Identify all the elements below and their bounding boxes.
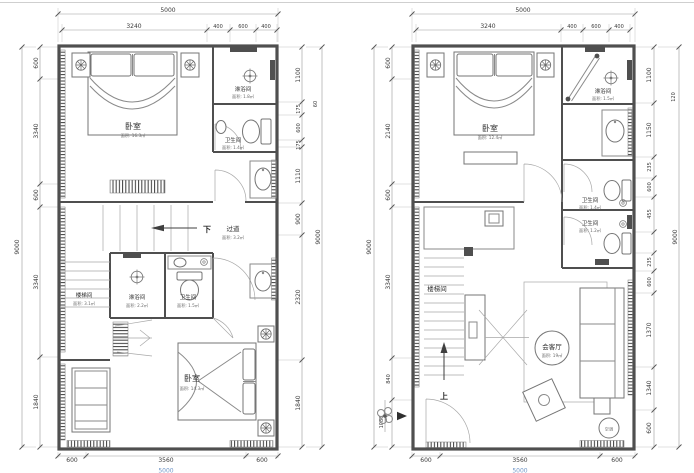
toilet-mid [168,256,211,300]
room-area-toilet-upper: 面积: 1.4㎡ [579,204,602,211]
dim-left-seg: 2140 [385,123,392,138]
dim-top-seg: 400 [614,24,624,30]
dim-left-seg: 1840 [33,394,40,409]
dim-right-seg: 1150 [646,122,653,137]
dim-left-total: 9000 [366,239,373,254]
dim-top-seg: 600 [591,24,601,30]
dim-left-seg: 3340 [385,274,392,289]
dim-bottom-seg: 600 [66,457,78,464]
dim-right-seg: 900 [295,213,302,225]
landing-table [485,211,503,226]
dim-right-seg: 1100 [646,67,653,82]
room-area-toilet-mid: 面积: 1.5㎡ [177,302,200,309]
dim-right-seg: 175 [296,140,302,150]
room-area-toilet-lower: 面积: 1.2㎡ [579,227,602,234]
window-band [628,280,633,395]
room-area-living: 面积: 19㎡ [542,352,563,359]
room-label-shower-mid: 淋浴间 [129,293,146,301]
dim-right-seg: 1840 [295,395,302,410]
dim-top-seg: 400 [261,24,271,30]
dim-right-total: 9000 [672,229,679,244]
dim-right-seg: 600 [647,277,653,287]
room-area-bedroom: 面积: 12.4㎡ [478,134,503,141]
room-area-bedroom-bottom: 面积: 14.3㎡ [180,385,205,392]
dim-right-seg: 235 [647,162,653,172]
dim-top-seg: 3240 [480,23,495,30]
window-band [580,441,624,448]
towel-bar [270,60,275,80]
wash-basin [602,110,632,156]
toilet-lower [604,233,631,254]
window-band [61,364,66,440]
entrance-threshold [426,442,466,448]
dim-bottom-seg: 600 [256,457,268,464]
dim-right-seg: 1340 [646,380,653,395]
dim-top-seg: 3240 [126,23,141,30]
room-label-toilet-upper: 卫生间 [582,196,599,204]
room-label-bedroom: 卧室 [482,123,498,133]
dim-right-seg: 1370 [646,322,653,337]
toilet-upper [604,180,631,201]
window-band [67,441,110,448]
sofa [580,288,624,398]
winder-railing [113,322,128,356]
dim-right-fragment: 60 [313,101,319,107]
window-band [272,160,277,198]
side-table [594,398,610,414]
dim-top-seg: 400 [213,24,223,30]
stair-down-label: 下 [203,225,211,234]
room-area-shower-top: 面积: 1.8㎡ [232,93,255,100]
room-label-bedroom-bottom: 卧室 [184,373,200,383]
dim-right-seg: 1110 [295,168,302,183]
dim-bottom-seg: 3560 [512,457,527,464]
dim-left-seg: 600 [385,57,392,69]
dim-right-fragment: 120 [671,92,677,102]
dim-right-seg: 235 [647,257,653,267]
bath-cabinet [595,259,609,265]
toilet-top [243,119,272,144]
room-label-shower: 淋浴间 [595,87,612,95]
shower-door-bar [123,254,141,258]
dim-left-total: 9000 [14,239,21,254]
room-area-corridor: 面积: 3.2㎡ [222,234,245,241]
dim-bottom-seg: 600 [420,457,432,464]
ac-label: 空调 [605,426,613,433]
dim-left-seg: 3340 [33,123,40,138]
entry-arrow [397,412,407,420]
stair-railing-grille [110,180,165,193]
room-label-toilet-top: 卫生间 [225,136,242,144]
dim-top-seg: 400 [567,24,577,30]
dim-right-seg: 600 [647,182,653,192]
down-arrow-head [151,225,164,231]
dim-right-seg: 600 [296,123,302,133]
room-label-stairwell: 楼梯间 [427,284,447,293]
floorplan-left: 5000 3240 400 600 400 9000 600 3340 600 … [0,0,347,473]
towel-bar [627,215,632,229]
window-band [61,207,66,352]
room-label-corridor: 过道 [227,224,241,233]
room-area-toilet-top: 面积: 1.4㎡ [222,144,245,151]
wardrobe [72,368,110,432]
window-band [415,207,420,387]
dim-right-total: 9000 [315,229,322,244]
dim-bottom-seg: 3560 [158,457,173,464]
dim-right-seg: 1100 [295,67,302,82]
room-label-bedroom-top: 卧室 [125,121,141,131]
window-band [61,50,66,198]
armchair [523,379,566,422]
window-sill [230,47,257,52]
stair-up-label: 上 [440,391,448,401]
dim-right-seg: 455 [647,209,653,219]
dim-left-seg: 840 [386,374,392,384]
room-area-shower-mid: 面积: 2.2㎡ [126,302,149,309]
floorplan-right: 5000 3240 400 600 400 9000 600 2140 600 … [347,0,694,473]
dim-left-seg: 600 [385,189,392,201]
dim-bottom-total: 5000 [512,468,527,473]
dim-right-seg: 600 [646,422,653,434]
room-label-stairwell: 楼梯间 [76,291,93,299]
room-area-shower: 面积: 1.5㎡ [592,95,615,102]
dresser [464,152,517,164]
dim-bottom-total: 5000 [158,468,173,473]
dim-left-seg: 600 [33,57,40,69]
dim-left-seg: 3340 [33,274,40,289]
room-label-toilet-lower: 卫生间 [582,219,599,227]
room-label-toilet-mid: 卫生间 [180,293,197,301]
small-sink [216,121,226,134]
room-area-stairwell: 面积: 3.1㎡ [73,300,96,307]
dim-right-seg: 175 [296,104,302,114]
newel-post [464,247,473,256]
dim-right-seg: 2320 [295,289,302,304]
window-sill [585,47,605,52]
dim-top-total: 5000 [160,7,175,14]
furniture-left-plan [72,52,276,436]
dim-top-total: 5000 [515,7,530,14]
up-arrow-head [441,342,448,353]
towel-bar [627,60,632,80]
dim-bottom-seg: 600 [611,457,623,464]
doors-right-plan [426,164,592,443]
room-area-bedroom-top: 面积: 16.3㎡ [121,132,146,139]
bed [454,52,534,135]
window-band [230,441,273,448]
tv-stand [465,295,529,365]
room-label-living: 会客厅 [542,342,562,351]
dim-top-seg: 600 [238,24,248,30]
dim-left-seg: 600 [33,189,40,201]
room-label-shower-top: 淋浴间 [235,85,252,93]
floorplan-canvas: 5000 3240 400 600 400 9000 600 3340 600 … [0,0,694,473]
window-band [415,50,420,198]
